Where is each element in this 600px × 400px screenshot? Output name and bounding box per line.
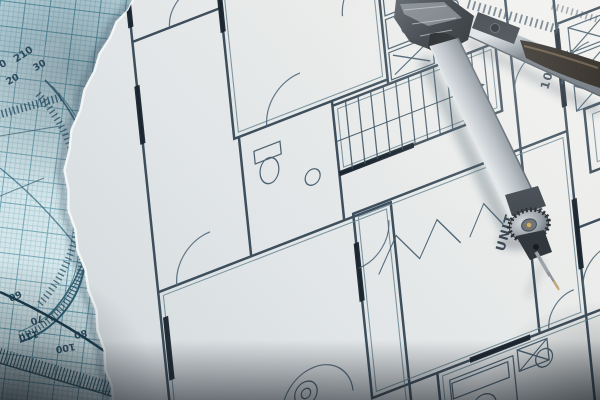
- blueprint-photo: 210 30 200 20 60 70 110 80 100: [0, 0, 600, 400]
- film-grain: [0, 0, 600, 400]
- scene: 210 30 200 20 60 70 110 80 100: [0, 0, 600, 400]
